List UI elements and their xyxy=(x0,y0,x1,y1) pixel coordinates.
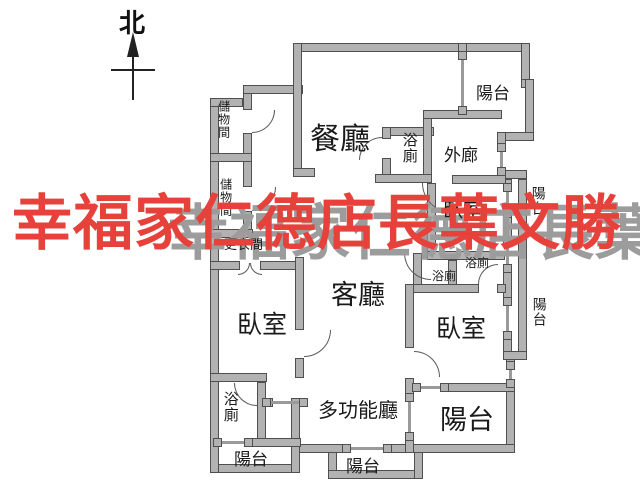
window xyxy=(461,55,464,111)
window xyxy=(506,301,509,336)
wall xyxy=(375,174,432,183)
wall xyxy=(295,257,304,330)
window xyxy=(408,397,411,437)
label-living-room: 客廳 xyxy=(331,281,385,309)
wall xyxy=(405,284,479,293)
window xyxy=(500,147,503,172)
label-balcony-bottom-left: 陽台 xyxy=(234,451,268,469)
label-outer-corridor: 外廊 xyxy=(444,147,478,165)
wall xyxy=(405,284,414,348)
label-bathroom-mid-left: 浴廁 xyxy=(432,270,456,283)
label-dining-room: 餐廳 xyxy=(310,124,370,156)
wall xyxy=(382,127,391,139)
wall xyxy=(497,284,506,293)
label-balcony-top: 陽台 xyxy=(476,85,510,103)
label-bathroom-mid-right: 浴廁 xyxy=(465,257,489,270)
label-bedroom-right: 臥室 xyxy=(436,317,486,343)
wall xyxy=(293,43,302,177)
north-arrow-icon xyxy=(111,32,155,100)
label-bathroom-top: 浴廁 xyxy=(400,132,416,164)
label-balcony-bottom-center: 陽台 xyxy=(346,458,380,476)
window xyxy=(509,365,512,384)
wall xyxy=(248,438,301,447)
wall xyxy=(257,382,266,440)
door-arc xyxy=(304,330,331,357)
wall xyxy=(293,43,530,52)
watermark-red: 幸福家仁德店長葉文勝 xyxy=(12,194,622,254)
label-bathroom-bottom-left: 浴廁 xyxy=(221,391,237,423)
window xyxy=(266,401,304,404)
wall xyxy=(506,383,515,453)
wall xyxy=(452,175,506,184)
wall xyxy=(210,153,252,162)
wall xyxy=(293,168,315,177)
compass-north-label: 北 xyxy=(119,3,145,40)
wall xyxy=(291,398,300,473)
label-balcony-right-lower: 陽台 xyxy=(530,297,545,327)
label-storage-1: 儲物間 xyxy=(217,100,230,139)
window xyxy=(217,441,249,444)
door-arc xyxy=(252,110,275,133)
window xyxy=(416,386,445,389)
wall xyxy=(444,383,515,392)
wall xyxy=(423,110,432,183)
wall xyxy=(210,373,267,382)
door-arc xyxy=(414,351,440,377)
window xyxy=(346,447,388,450)
label-multi-function-hall: 多功能廳 xyxy=(318,401,398,422)
wall xyxy=(414,452,423,479)
wall xyxy=(413,444,515,453)
wall xyxy=(295,358,304,378)
label-balcony-bottom-right: 陽台 xyxy=(440,406,494,434)
label-bedroom-left: 臥室 xyxy=(237,313,287,339)
floor-plan: 北 xyxy=(0,0,640,480)
